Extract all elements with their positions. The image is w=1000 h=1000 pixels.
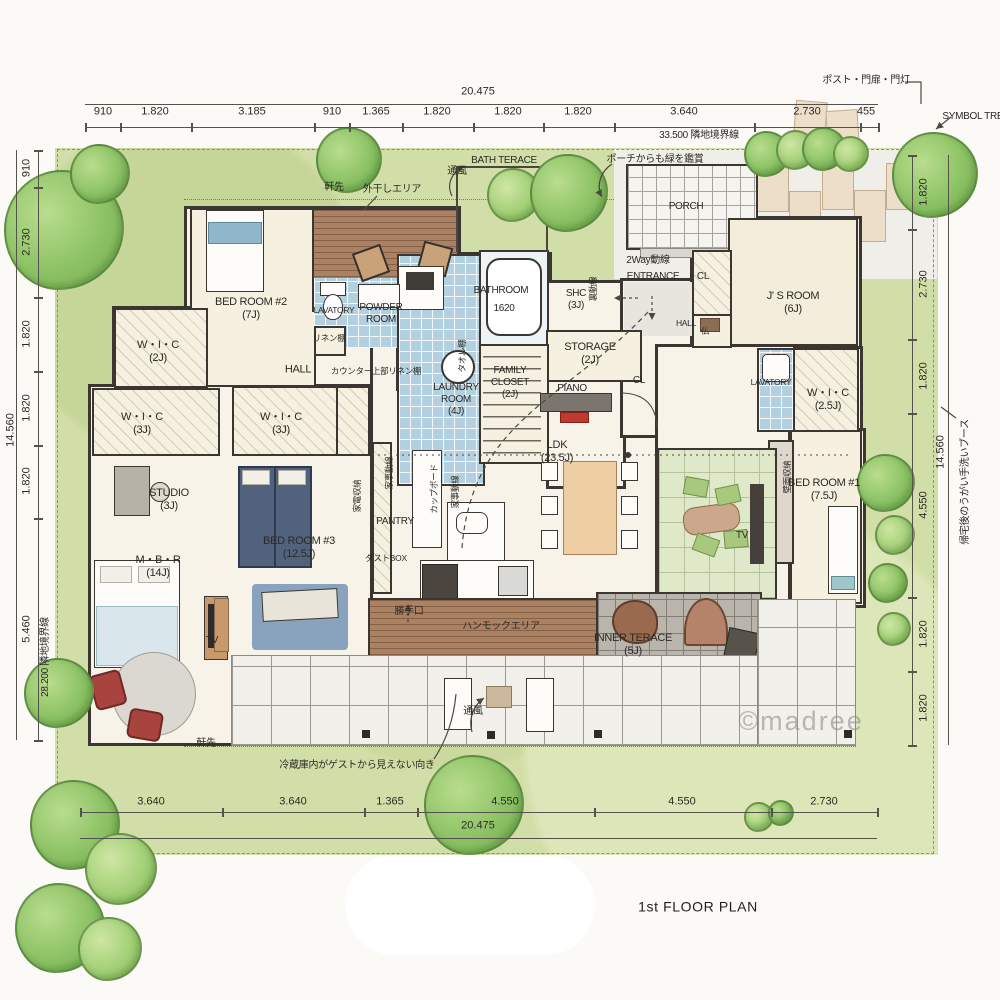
labels-layer: BED ROOM #2 (7J)W・I・C (2J)W・I・C (3J)W・I・… [0, 0, 1000, 1000]
room-label-mbr: M・B・R (14J) [136, 554, 181, 580]
dim-tick-top [85, 123, 87, 132]
dim-left-0: 910 [20, 159, 33, 177]
label-counter-linen: カウンター上部リネン棚 [331, 366, 421, 376]
label-fridge-note: 冷蔵庫内がゲストから見えない向き [279, 760, 434, 772]
label-2way-line: 2Way動線 [626, 255, 669, 267]
room-label-bedroom2: BED ROOM #2 (7J) [215, 296, 287, 322]
dim-tick-bottom [877, 808, 879, 817]
dim-tick-right [908, 229, 917, 231]
dim-top-7: 1.820 [564, 105, 592, 118]
label-vent-bottom: 通風 [463, 706, 482, 718]
dim-tick-left [34, 518, 43, 520]
room-label-laundry: LAUNDRY ROOM (4J) [433, 382, 479, 418]
label-eaves-bottom: 軒先 [196, 738, 215, 750]
dim-tick-top [191, 123, 193, 132]
label-gate-note: ポスト・門扉・門灯 [822, 75, 909, 87]
dim-tick-top [120, 123, 122, 132]
dim-bottom-4: 4.550 [668, 795, 696, 808]
label-porch-green-note: ポーチからも緑を鑑賞 [607, 154, 704, 166]
room-label-porch: PORCH [669, 201, 704, 213]
dim-right-2: 1.820 [917, 362, 930, 390]
dim-left-2: 1.820 [20, 320, 33, 348]
label-bath-size: 1620 [493, 303, 514, 315]
room-label-jsroom: J' S ROOM (6J) [767, 290, 820, 316]
dim-top-1: 1.820 [141, 105, 169, 118]
dim-bottom-3: 4.550 [491, 795, 519, 808]
label-ura-dousen: 裏動線 [588, 277, 598, 302]
dim-tick-left [34, 150, 43, 152]
dim-tick-top [473, 123, 475, 132]
room-label-hall: HALL [285, 363, 311, 376]
dim-bottom-overall: 20.475 [461, 819, 495, 832]
dim-tick-bottom [417, 808, 419, 817]
room-label-bathroom: BATHROOM [474, 285, 529, 297]
label-boundary-top: 33.500 隣地境界線 [659, 130, 739, 142]
room-label-ldk: LDK (23.5J) [541, 439, 573, 465]
dim-tick-left [34, 187, 43, 189]
dim-tick-bottom [594, 808, 596, 817]
label-linen-shelf: リネン棚 [313, 333, 346, 343]
dim-bottom-0: 3.640 [137, 795, 165, 808]
room-label-wic-3j-mid: W・I・C (3J) [260, 411, 302, 437]
dim-line-bottom-overall [80, 838, 877, 839]
room-label-wic-2j: W・I・C (2J) [137, 339, 179, 365]
room-label-storage: STORAGE (2J) [564, 341, 616, 367]
label-cl-jsroom: CL [697, 271, 709, 283]
room-label-shc: SHC (3J) [566, 288, 586, 312]
dim-bottom-5: 2.730 [810, 795, 838, 808]
dim-tick-right [908, 339, 917, 341]
dim-top-6: 1.820 [494, 105, 522, 118]
dim-tick-left [34, 740, 43, 742]
dim-right-0: 1.820 [917, 178, 930, 206]
room-label-powder: POWDER ROOM [359, 302, 402, 326]
dim-left-5: 5.460 [20, 615, 33, 643]
dim-top-8: 3.640 [670, 105, 698, 118]
label-wall-storage: 壁面収納 [782, 461, 792, 494]
dim-bottom-1: 3.640 [279, 795, 307, 808]
label-drying-area: 外干しエリア [363, 184, 421, 196]
dim-top-10: 455 [857, 105, 875, 118]
label-piano: PIANO [557, 383, 587, 395]
label-pantry: PANTRY [376, 516, 414, 528]
dim-right-5: 1.820 [917, 694, 930, 722]
dim-tick-top [314, 123, 316, 132]
room-label-inner-terrace: INNER TERACE (5J) [594, 632, 672, 658]
label-cl-hall: CL [633, 375, 645, 387]
room-label-wic-25j: W・I・C (2.5J) [807, 387, 849, 413]
dim-right-3: 4.550 [917, 491, 930, 519]
label-appliance-storage: 家電収納 [352, 480, 362, 513]
room-label-bedroom1: BED ROOM #1 (7.5J) [788, 477, 860, 503]
dim-left-1: 2.730 [20, 228, 33, 256]
dim-left-3: 1.820 [20, 394, 33, 422]
dim-top-4: 1.365 [362, 105, 390, 118]
dim-right-1: 2.730 [917, 270, 930, 298]
dim-tick-top [349, 123, 351, 132]
room-label-studio: STUDIO (3J) [149, 487, 189, 513]
dim-tick-top [402, 123, 404, 132]
dim-tick-top [860, 123, 862, 132]
dim-tick-right [908, 597, 917, 599]
dim-left-4: 1.820 [20, 467, 33, 495]
dim-top-overall: 20.475 [461, 85, 495, 98]
label-handwash-note: 帰宅後のうがい手洗いブース [960, 419, 972, 545]
label-tv-west: TV [206, 635, 218, 647]
dim-top-9: 2.730 [793, 105, 821, 118]
label-hammock-area: ハンモックエリア [462, 621, 540, 633]
label-symbol-tree: SYMBOL TREE [942, 111, 1000, 123]
label-bath-terrace: BATH TERACE [471, 155, 537, 167]
label-kitchen-door: 勝手口 [394, 606, 423, 618]
dim-top-2: 3.185 [238, 105, 266, 118]
label-hall-east: HALL [676, 318, 696, 328]
dim-tick-left [34, 445, 43, 447]
dim-tick-top [614, 123, 616, 132]
dim-line-right-overall [948, 155, 949, 745]
dim-line-left-overall [16, 150, 17, 740]
room-label-lavatory-east: LAVATORY [751, 377, 792, 387]
room-label-entrance: ENTRANCE [627, 271, 680, 283]
dim-line-right [912, 155, 913, 745]
label-eaves-top: 軒先 [324, 182, 343, 194]
dim-tick-bottom [771, 808, 773, 817]
dim-tick-right [908, 155, 917, 157]
dim-tick-top [878, 123, 880, 132]
dim-line-top [85, 127, 878, 128]
dim-line-bottom [80, 812, 877, 813]
dim-right-4: 1.820 [917, 620, 930, 648]
label-dustbox: ダストBOX [365, 553, 407, 563]
label-vent-top: 通風 [447, 166, 466, 178]
dim-top-5: 1.820 [423, 105, 451, 118]
dim-tick-left [34, 297, 43, 299]
dim-line-top-overall [85, 104, 878, 105]
dim-tick-right [908, 671, 917, 673]
dim-tick-bottom [80, 808, 82, 817]
dim-tick-top [754, 123, 756, 132]
label-tv-east: TV [736, 530, 748, 542]
dim-tick-right [908, 413, 917, 415]
dim-top-3: 910 [323, 105, 341, 118]
dim-tick-bottom [222, 808, 224, 817]
dim-tick-top [543, 123, 545, 132]
label-cupboard: カップボード [429, 464, 439, 513]
dim-tick-bottom [364, 808, 366, 817]
dim-tick-left [34, 371, 43, 373]
label-boundary-left: 28.200 隣地境界線 [40, 617, 52, 697]
dim-top-0: 910 [94, 105, 112, 118]
label-kaji-line-1: 家事動線 [384, 457, 394, 490]
room-label-wic-3j-west: W・I・C (3J) [121, 411, 163, 437]
label-towel-shelf: タオル棚 [457, 340, 467, 373]
label-butsudan: 仏 [701, 326, 709, 336]
dim-bottom-2: 1.365 [376, 795, 404, 808]
label-kaji-line-2: 家事動線 [450, 476, 460, 509]
room-label-bedroom3: BED ROOM #3 (12.5J) [263, 535, 335, 561]
dim-tick-right [908, 745, 917, 747]
dim-right-overall: 14.560 [934, 435, 947, 469]
floor-plan-page: BED ROOM #2 (7J)W・I・C (2J)W・I・C (3J)W・I・… [0, 0, 1000, 1000]
room-label-lavatory-west: LAVATORY [314, 305, 355, 315]
room-label-family-closet: FAMILY CLOSET (2J) [491, 365, 529, 401]
